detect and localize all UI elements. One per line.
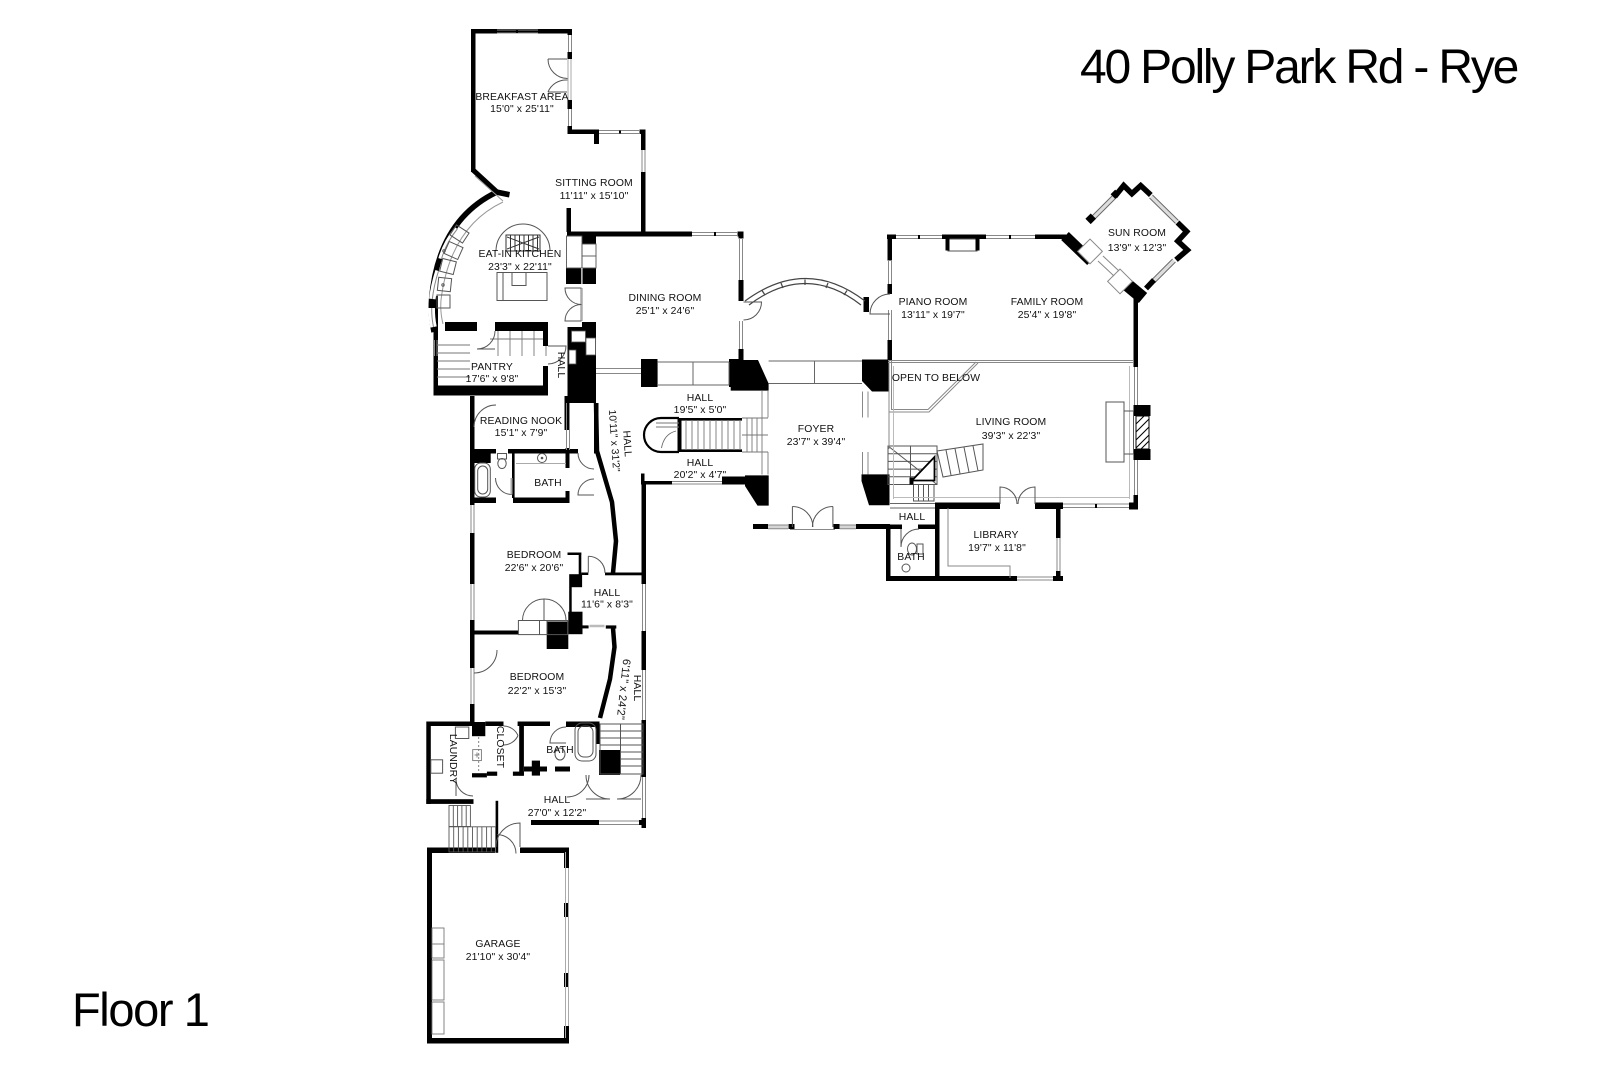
svg-text:LIBRARY: LIBRARY [973,530,1018,541]
svg-text:BATH: BATH [546,745,573,756]
svg-text:23'7" x 39'4": 23'7" x 39'4" [787,437,846,448]
svg-text:Floor 1: Floor 1 [72,983,208,1036]
svg-text:CLOSET: CLOSET [494,726,505,769]
svg-text:40 Polly Park Rd - Rye: 40 Polly Park Rd - Rye [1080,41,1518,94]
svg-text:21'10" x 30'4": 21'10" x 30'4" [466,952,531,963]
svg-text:LAUNDRY: LAUNDRY [447,734,458,784]
svg-text:HALL: HALL [544,795,571,806]
svg-text:20'2" x 4'7": 20'2" x 4'7" [674,470,727,481]
svg-text:HALL: HALL [594,588,621,599]
svg-text:HALL: HALL [687,393,714,404]
svg-text:PANTRY: PANTRY [471,362,513,373]
svg-text:PIANO ROOM: PIANO ROOM [899,297,968,308]
svg-text:FAMILY ROOM: FAMILY ROOM [1011,297,1084,308]
svg-text:BATH: BATH [897,552,924,563]
svg-text:EAT-IN KITCHEN: EAT-IN KITCHEN [479,249,562,260]
svg-text:HALL: HALL [555,352,566,379]
svg-text:HALL: HALL [631,675,642,702]
svg-text:BREAKFAST AREA: BREAKFAST AREA [475,92,568,103]
svg-text:BEDROOM: BEDROOM [507,550,562,561]
svg-text:OPEN TO BELOW: OPEN TO BELOW [892,373,980,384]
svg-text:19'5" x 5'0": 19'5" x 5'0" [674,405,727,416]
svg-text:LIVING ROOM: LIVING ROOM [976,417,1047,428]
svg-text:11'11" x 15'10": 11'11" x 15'10" [560,191,629,202]
svg-text:19'7" x 11'8": 19'7" x 11'8" [968,543,1026,554]
svg-text:22'2" x 15'3": 22'2" x 15'3" [508,686,567,697]
svg-text:FOYER: FOYER [798,424,835,435]
svg-text:BATH: BATH [534,478,561,489]
svg-text:13'9" x 12'3": 13'9" x 12'3" [1108,243,1167,254]
svg-text:11'6" x 8'3": 11'6" x 8'3" [581,600,633,611]
svg-text:15'1" x 7'9": 15'1" x 7'9" [495,428,548,439]
svg-text:HALL: HALL [899,512,926,523]
svg-text:SUN ROOM: SUN ROOM [1108,228,1166,239]
svg-text:HALL: HALL [687,458,714,469]
svg-text:25'1" x 24'6": 25'1" x 24'6" [636,306,695,317]
svg-text:22'6" x 20'6": 22'6" x 20'6" [505,563,564,574]
svg-text:DINING ROOM: DINING ROOM [629,293,702,304]
svg-text:15'0" x 25'11": 15'0" x 25'11" [490,104,554,115]
svg-text:23'3" x 22'11": 23'3" x 22'11" [488,262,552,273]
svg-text:BEDROOM: BEDROOM [510,672,565,683]
svg-text:READING NOOK: READING NOOK [480,416,562,427]
svg-text:13'11" x 19'7": 13'11" x 19'7" [901,310,965,321]
svg-text:17'6" x 9'8": 17'6" x 9'8" [466,374,519,385]
svg-text:25'4" x 19'8": 25'4" x 19'8" [1018,310,1077,321]
svg-text:GARAGE: GARAGE [475,939,520,950]
svg-text:SITTING ROOM: SITTING ROOM [555,178,633,189]
svg-text:39'3" x 22'3": 39'3" x 22'3" [982,431,1041,442]
svg-text:HALL: HALL [620,430,633,457]
svg-text:27'0" x 12'2": 27'0" x 12'2" [528,808,587,819]
